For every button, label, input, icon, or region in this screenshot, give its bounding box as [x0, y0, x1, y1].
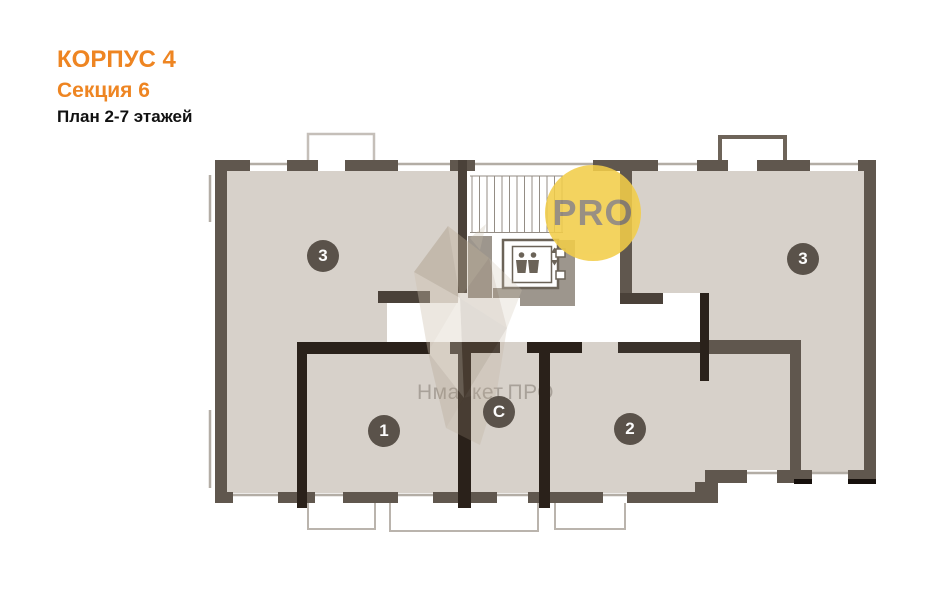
pro-watermark-badge: PRO: [545, 165, 641, 261]
floor-plan-page: КОРПУС 4 Секция 6 План 2-7 этажей: [0, 0, 941, 600]
room-label-2: 2: [614, 413, 646, 445]
room-label-1: 1: [368, 415, 400, 447]
room-label-3-left: 3: [307, 240, 339, 272]
room-label-3-right: 3: [787, 243, 819, 275]
room-label-studio: С: [483, 396, 515, 428]
floor-plan-drawing: Нмаркет.ПРО: [0, 0, 941, 600]
